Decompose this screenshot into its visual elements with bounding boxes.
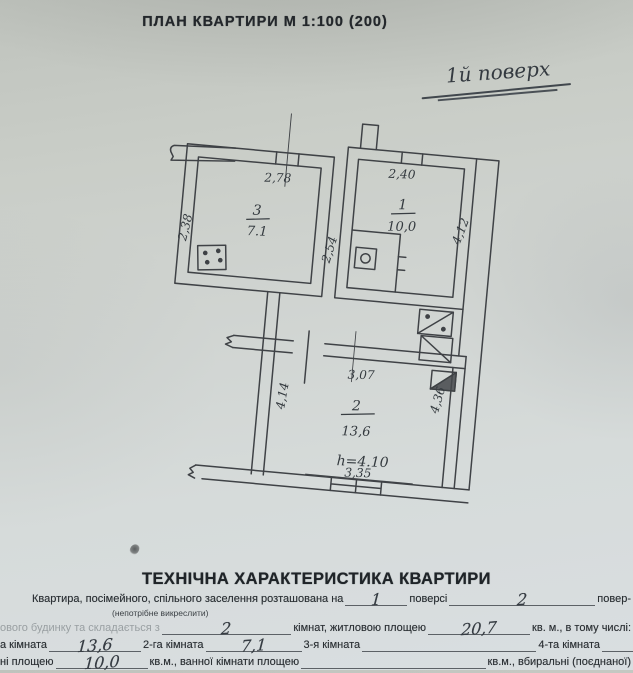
floor-plan-drawing: 3 7.1 2,78 2,38 2,54 1 10,0 2,40 4,12 2 … [136,94,506,515]
wall-stub-top [360,124,378,150]
line4-text-mid: кв.м., ванної кімнати площею [148,656,302,669]
ink-smudge [128,543,140,556]
floor-note: 1й поверх [417,54,578,89]
line3-blank-room4 [602,636,633,652]
room2-dim-top: 3,07 [347,368,375,383]
line1-text-mid: поверсі [407,593,449,606]
line2-text-end: кв. м., в тому числі: [530,622,633,635]
wall-break-symbol [188,464,196,478]
line1-text: Квартира, посімейного, спільного заселен… [30,593,345,606]
room2-dim-left: 4,14 [273,381,292,411]
form-line-4: ні площею 10,0 кв.м., ванної кімнати пло… [0,653,633,669]
line3-blank-room1: 13,6 [49,636,141,652]
room1-area: 10,0 [387,220,416,235]
line4-value-kitchen: 10,0 [83,655,120,672]
room1-walls [335,123,479,309]
room1-number: 1 [398,197,407,213]
form-line-2: ового будинку та складається з 2 кімнат,… [0,619,633,635]
line3-text-mid1: 2-га кімната [141,639,206,652]
line2-value-rooms: 2 [221,622,232,637]
room2-dim-bottom: 3,35 [344,465,372,480]
line1-value-floor: 1 [371,593,382,608]
room2-area: 13,6 [341,424,370,440]
line4-blank-kitchen: 10,0 [56,653,148,669]
line2-text: ового будинку та складається з [0,622,162,635]
line2-blank-area: 20,7 [428,619,530,635]
line3-value-room2: 7,1 [240,638,266,654]
line3-blank-room2: 7,1 [206,636,302,652]
line2-value-area: 20,7 [461,621,498,638]
line3-text: а кімната [0,639,49,652]
line3-blank-room3 [362,636,536,652]
toilet-icon [347,230,408,293]
room3-dim-left: 2,38 [175,212,196,243]
strike-note: (непотрібне викреслити) [112,608,208,618]
line3-text-mid2: 3-я кімната [302,639,363,652]
line4-text-end: кв.м., вбиральні (поєднаної) [486,656,633,669]
room3-area: 7.1 [246,224,267,240]
line2-text-mid: кімнат, житловою площею [291,622,428,635]
floor-note-underline [422,83,572,99]
tech-heading: ТЕХНІЧНА ХАРАКТЕРИСТИКА КВАРТИРИ [0,570,633,589]
room3-dim-right: 2,54 [319,235,341,266]
wall-break-symbol [225,335,234,348]
room1-dim-top: 2,40 [387,167,416,182]
line1-blank-storeys: 2 [449,590,595,606]
floor-plan: 3 7.1 2,78 2,38 2,54 1 10,0 2,40 4,12 2 … [136,94,506,515]
room3-dim-top: 2,78 [263,171,292,186]
room3-number: 3 [252,203,262,219]
form-line-1: Квартира, посімейного, спільного заселен… [0,590,633,606]
door-line [304,331,309,383]
line4-text: ні площею [0,656,56,669]
line1-blank-floor: 1 [345,590,407,606]
stove-icon [198,245,226,270]
form-line-3: а кімната 13,6 2-га кімната 7,1 3-я кімн… [0,636,633,652]
room3-walls [158,103,337,296]
line4-blank-bath [301,653,485,669]
page-title: ПЛАН КВАРТИРИ М 1:100 (200) [0,14,530,30]
room2-number: 2 [351,398,361,414]
line1-text-end: повер- [595,593,633,606]
line2-blank-rooms: 2 [162,619,292,635]
floor-note-text: 1й поверх [445,56,551,87]
line1-value-storeys: 2 [517,593,528,608]
line3-text-mid3: 4-та кімната [536,639,602,652]
